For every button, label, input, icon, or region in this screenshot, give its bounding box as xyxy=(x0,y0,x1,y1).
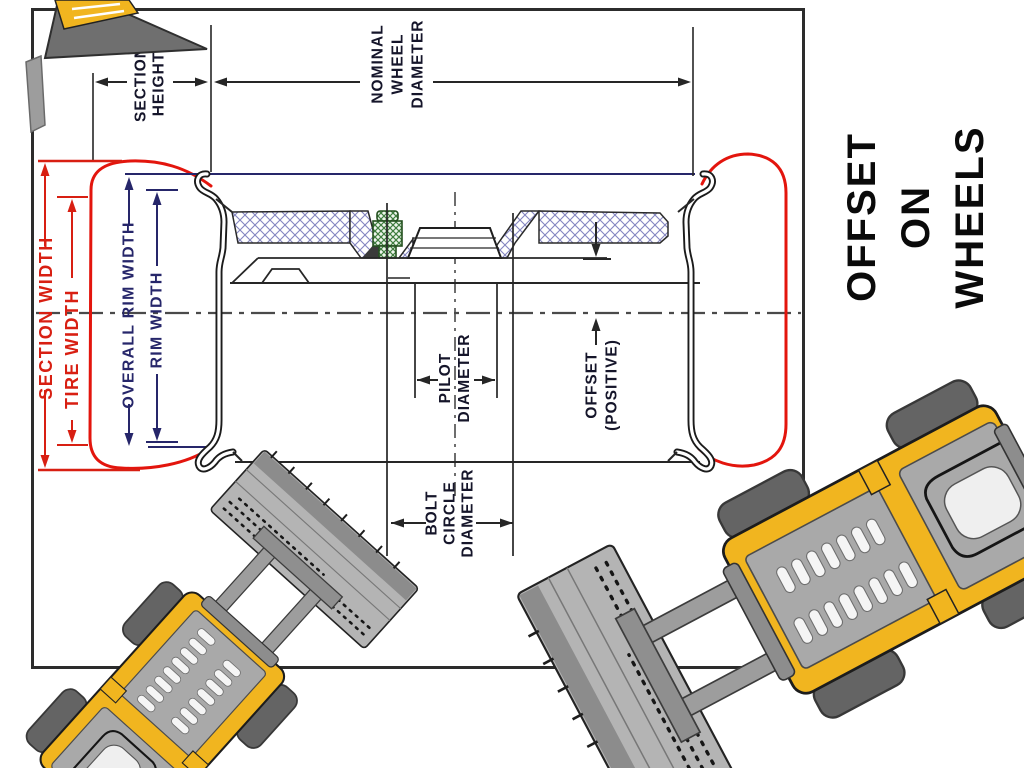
label-line: OVERALL RIM WIDTH xyxy=(121,221,138,408)
label-line: SECTION xyxy=(133,46,150,122)
label-line: HEIGHT xyxy=(151,52,168,117)
section-width-label: SECTION WIDTH xyxy=(36,236,56,400)
label-line: (POSITIVE) xyxy=(604,339,621,431)
title-line: ON xyxy=(894,185,938,249)
section-height-label: SECTION HEIGHT xyxy=(133,46,168,122)
label-line: DIAMETER xyxy=(456,334,473,423)
label-line: CIRCLE xyxy=(442,481,459,545)
rim-barrel-hatch-left xyxy=(232,211,350,243)
label-line: PILOT xyxy=(437,353,454,404)
label-line: TIRE WIDTH xyxy=(62,289,82,409)
page-title: OFFSET ON WHEELS xyxy=(840,125,992,308)
rim-width-label: RIM WIDTH xyxy=(149,271,166,368)
label-line: SECTION WIDTH xyxy=(36,236,56,400)
title-line: OFFSET xyxy=(840,132,884,302)
rim-barrel-hatch-right xyxy=(539,211,668,243)
label-line: DIAMETER xyxy=(410,20,427,109)
offset-on-wheels-figure: SECTION HEIGHT NOMINAL WHEEL DIAMETER SE… xyxy=(0,0,1024,768)
tire-width-label: TIRE WIDTH xyxy=(62,289,82,409)
label-line: NOMINAL xyxy=(370,24,387,103)
title-line: WHEELS xyxy=(948,125,992,308)
label-line: BOLT xyxy=(424,490,441,535)
label-line: OFFSET xyxy=(584,351,601,418)
label-line: RIM WIDTH xyxy=(149,271,166,368)
offset-on-wheels-page: SECTION HEIGHT NOMINAL WHEEL DIAMETER SE… xyxy=(0,0,1024,768)
label-line: WHEEL xyxy=(390,34,407,95)
overall-rim-width-label: OVERALL RIM WIDTH xyxy=(121,221,138,408)
center-disc xyxy=(408,228,501,258)
label-line: DIAMETER xyxy=(460,469,477,558)
